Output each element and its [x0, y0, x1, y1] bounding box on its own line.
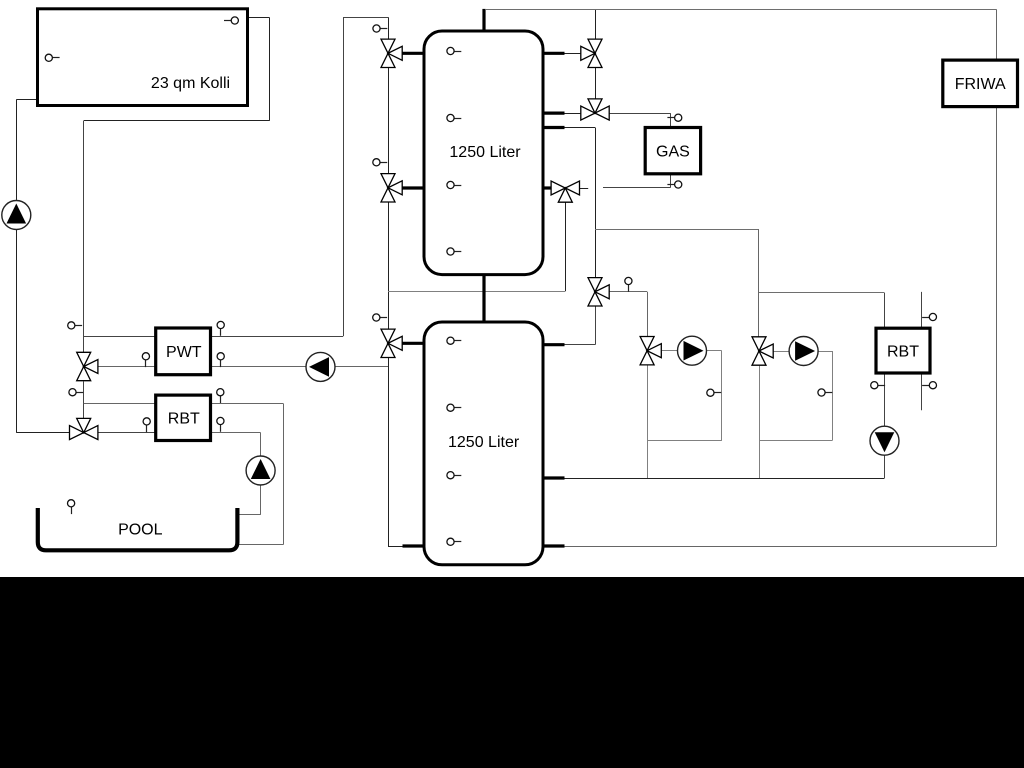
- svg-text:FRIWA: FRIWA: [955, 76, 1006, 93]
- svg-text:23 qm Kolli: 23 qm Kolli: [151, 75, 230, 92]
- svg-text:POOL: POOL: [118, 522, 163, 539]
- svg-text:RBT: RBT: [887, 343, 919, 360]
- svg-text:GAS: GAS: [656, 143, 690, 160]
- svg-text:1250 Liter: 1250 Liter: [449, 144, 521, 161]
- svg-text:1250 Liter: 1250 Liter: [448, 434, 520, 451]
- svg-text:RBT: RBT: [168, 411, 200, 428]
- svg-text:PWT: PWT: [166, 344, 202, 361]
